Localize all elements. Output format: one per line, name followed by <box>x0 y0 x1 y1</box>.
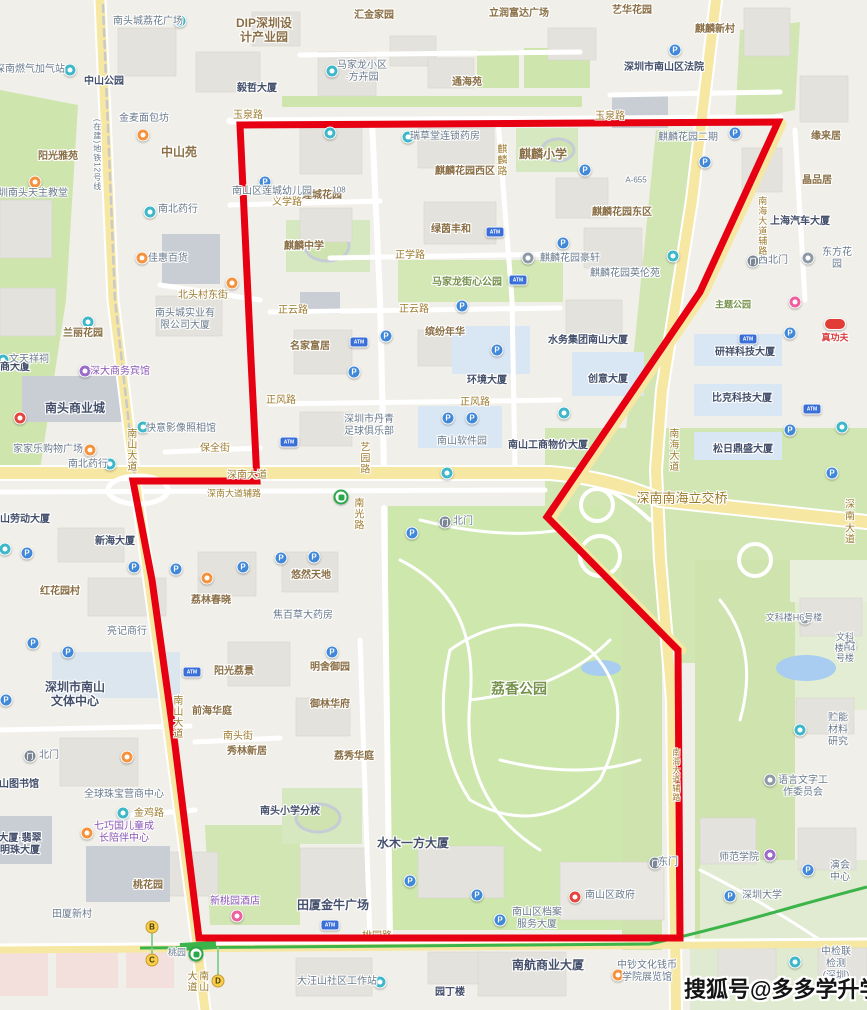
map-label: 中钞文化钱币 学院展览馆 <box>617 960 677 984</box>
map-label: 南海大道辅路 <box>671 748 680 802</box>
map-label: 七巧国儿童成 长陪伴中心 <box>94 821 154 845</box>
map-label: 新桃园酒店 <box>210 896 260 908</box>
map-label: 深南大道辅路 <box>207 489 261 500</box>
map-label: 阳光雅苑 <box>38 151 78 163</box>
map-label: 东门 <box>658 857 678 869</box>
map-label: 文天祥祠 <box>9 354 49 366</box>
map-label-layer: 南头城荔花广场DIP深圳设 计产业园汇金家园立润富达广场艺华花园麒麟新村深圳市南… <box>0 0 867 1010</box>
map-label: 南山工商物价大厦 <box>508 440 588 452</box>
map-label: 深南南海立交桥 <box>636 490 727 505</box>
map-label: 焦百草大药房 <box>273 610 333 622</box>
map-label: 园丁楼 <box>435 987 465 999</box>
map-label: 南山大道 <box>124 428 136 472</box>
map-label: 桃园 <box>168 948 186 959</box>
map-label: 北门 <box>39 750 59 762</box>
map-label: 麒麟新村 <box>695 24 735 36</box>
map-label: 马家龙街心公园 <box>432 277 502 289</box>
map-label: 深南大道 <box>227 470 267 482</box>
map-label: 正云路 <box>278 305 308 317</box>
map-label: 艺园路 <box>357 442 369 475</box>
watermark: 搜狐号@多多学升学 <box>684 972 867 1004</box>
map-label: 麒麟花园东区 <box>592 207 652 219</box>
map-label: 北头村东街 <box>178 290 228 302</box>
map-label: 全球珠宝营商中心 <box>84 789 164 801</box>
map-label: 正学路 <box>395 250 425 262</box>
map-label: 麒麟花园二期 <box>658 132 718 144</box>
map-label: 水务集团南山大厦 <box>548 335 628 347</box>
map-label: 深大商务宾馆 <box>90 366 150 378</box>
map-label: 大汪山社区工作站 <box>297 976 377 988</box>
map-label: 绿茵丰和 <box>431 224 471 236</box>
map-label: 文科楼H6号楼 <box>766 613 823 624</box>
map-label: 桃花园 <box>133 880 163 892</box>
map-label: 南头城实业有 限公司大厦 <box>155 308 215 332</box>
map-label: 南头小学分校 <box>260 806 320 818</box>
map-label: 名家富居 <box>290 341 330 353</box>
map-label: 新海大厦 <box>95 536 135 548</box>
map-label: 田厦金牛广场 <box>297 898 369 912</box>
map-label: 深圳市南山区法院 <box>624 62 704 74</box>
map-label: 御林华府 <box>310 699 350 711</box>
map-label: 南山区档案 服务大厦 <box>512 907 562 931</box>
map-label: 马家龙小区 ·方卉园 <box>337 60 387 84</box>
map-label: (在建)地铁12号线 <box>92 119 101 191</box>
map-label: 正云路 <box>399 304 429 316</box>
map-label: 中山公园 <box>84 76 124 88</box>
map-label: 通海苑 <box>452 77 482 89</box>
map-label: 水木一方大厦 <box>377 836 449 850</box>
map-label: 家家乐购物广场 <box>13 444 83 456</box>
map-label: 快意影像照相馆 <box>146 423 216 435</box>
map-label: 师范学院 <box>719 852 759 864</box>
map-label: 南头商业城 <box>45 401 105 415</box>
map-label: A-655 <box>625 175 646 184</box>
map-label: 深南大道 <box>842 499 859 546</box>
map-label: 荔林春晓 <box>191 595 231 607</box>
map-label: 语言文字工 作委员会 <box>778 775 828 799</box>
map-label: 深圳市南山 文体中心 <box>45 680 105 708</box>
map-label: 东方花园 <box>822 247 852 271</box>
map-label: 南山大道 <box>184 967 208 996</box>
map-label: 阳光荔景 <box>214 666 254 678</box>
map-label: 悠然天地 <box>291 570 331 582</box>
map-label: 金鸡路 <box>134 808 164 820</box>
map-label: 玉泉路 <box>233 110 263 122</box>
map-label: 缤纷年华 <box>425 327 465 339</box>
map-label: 南山大道 <box>170 695 182 739</box>
map-label: 田厦新村 <box>52 909 92 921</box>
map-viewport[interactable]: 桃园路 PPPPPPPPPPPPPPPPPPPPPPPPPPPPPPP门门门门A… <box>0 0 867 1010</box>
map-label: 前海华庭 <box>192 706 232 718</box>
map-label: 麒麟花园西区 <box>435 166 495 178</box>
map-label: 保全街 <box>200 443 230 455</box>
map-label: 深南燃气加气站 <box>0 64 65 76</box>
map-label: 南山图书馆 <box>0 779 39 791</box>
map-label: DIP深圳设 计产业园 <box>236 16 292 44</box>
map-label: 立润富达广场 <box>489 8 549 20</box>
map-label: 深圳南头天主教堂 <box>0 188 68 200</box>
map-label: 汇金家园 <box>354 10 394 22</box>
map-label: 麒麟路 <box>494 144 506 177</box>
map-label: 麒麟小学 <box>519 147 567 161</box>
map-label: 南山软件园 <box>437 436 487 448</box>
map-label: 南海大道 <box>666 428 678 472</box>
map-label: 瑞草堂连锁药房 <box>410 131 480 143</box>
map-label: 文科楼H4号楼 <box>834 632 856 664</box>
map-label: 南北药行 <box>158 204 198 216</box>
map-label: 金麦面包坊 <box>119 113 169 125</box>
map-label: 贮能材料研究 <box>824 712 853 747</box>
map-label: 麒麟花园豪轩 <box>540 253 600 265</box>
map-label: 麒麟花园英伦苑 <box>590 268 660 280</box>
map-label: 兰丽花园 <box>63 328 103 340</box>
map-label: 研祥科技大厦 <box>715 347 775 359</box>
map-label: 比克科技大厦 <box>712 393 772 405</box>
map-label: 南航商业大厦 <box>512 958 584 972</box>
map-label: 麒麟中学 <box>284 241 324 253</box>
map-label: 南头街 <box>223 731 253 743</box>
map-label: 深圳市丹青 足球俱乐部 <box>344 414 394 438</box>
map-label: 明舍御园 <box>310 662 350 674</box>
map-label: 毅哲大厦 <box>237 83 277 95</box>
map-label: 深圳大学 <box>742 890 782 902</box>
map-label: 真功夫 <box>821 333 848 344</box>
map-label: 南头城荔花广场 <box>113 16 183 28</box>
map-label: 中山苑 <box>161 145 197 159</box>
map-label: 佳惠百货 <box>148 253 188 265</box>
map-label: 荔秀华庭 <box>334 751 374 763</box>
map-label: 西北门 <box>758 255 788 267</box>
map-label: 正风路 <box>460 397 490 409</box>
map-label: 荔香公园 <box>491 681 547 698</box>
map-label: 108 <box>332 185 345 194</box>
map-label: 南海大道辅路 <box>757 196 768 256</box>
map-label: 上海汽车大厦 <box>770 216 830 228</box>
map-label: 主题公园 <box>715 300 751 311</box>
map-label: 秀林新居 <box>227 746 267 758</box>
map-label: 南光路 <box>351 498 363 531</box>
map-label: 南山区政府 <box>585 890 635 902</box>
map-label: 演会中心 <box>827 860 854 884</box>
map-label: 红花园村 <box>40 586 80 598</box>
map-label: 艺华花园 <box>612 5 652 17</box>
map-label: 大厦·翡翠 明珠大厦 <box>0 833 42 857</box>
map-label: 亮记商行 <box>107 626 147 638</box>
map-label: 义学路 <box>272 197 302 209</box>
map-label: 晶品居 <box>802 175 832 187</box>
map-label: 北门 <box>453 516 473 528</box>
map-label: 玉泉路 <box>595 111 625 123</box>
map-label: 创意大厦 <box>588 374 628 386</box>
map-label: 正风路 <box>266 395 296 407</box>
map-label: 松日鼎盛大厦 <box>713 444 773 456</box>
map-label: 缘来居 <box>811 131 841 143</box>
map-label: 南北药行 <box>68 459 108 471</box>
map-label: 环境大厦 <box>467 375 507 387</box>
map-label: 南山劳动大厦 <box>0 514 50 526</box>
